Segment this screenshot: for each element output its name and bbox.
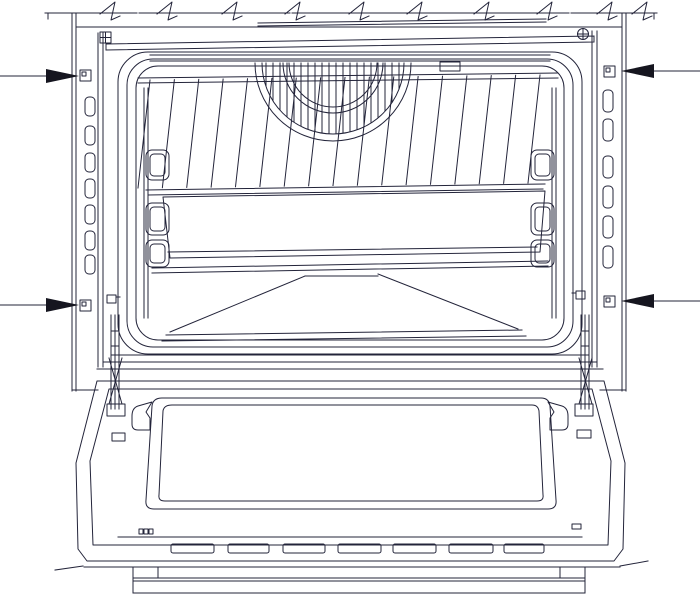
- break-mark: [474, 2, 494, 20]
- rack-wire: [455, 76, 467, 184]
- strip-slot: [603, 90, 613, 112]
- door-latch-left: [132, 402, 152, 430]
- door-outer-outline: [76, 381, 625, 561]
- shelf-bracket-inner: [150, 244, 165, 263]
- rack-wire: [406, 77, 418, 185]
- fixing-screw-holes: [80, 66, 615, 311]
- oven-top-trim: [106, 19, 594, 50]
- rack-wire: [162, 80, 174, 188]
- rack-wire: [431, 76, 443, 184]
- strip-slot: [85, 179, 95, 198]
- break-mark: [597, 2, 617, 20]
- break-mark: [407, 2, 427, 20]
- rack-wire: [187, 79, 199, 187]
- break-mark: [537, 2, 557, 20]
- fixing-arrow-head-bottom-left: [46, 298, 79, 312]
- fixing-hole-notch: [82, 72, 86, 76]
- strip-slot: [85, 205, 95, 224]
- fixing-strip-right: [603, 90, 613, 268]
- plinth-base: [133, 567, 585, 593]
- cavity-floor-perspective: [162, 274, 526, 341]
- cabinet-left-panel: [72, 14, 98, 391]
- wire-rack-front-rail: [146, 184, 545, 195]
- strip-slot: [85, 255, 95, 274]
- hinge-pin-symbol-right: [572, 291, 585, 299]
- strip-slot: [85, 231, 95, 250]
- shelf-bracket-inner: [150, 207, 165, 231]
- shelf-bracket-inner: [150, 154, 165, 176]
- door-mark-square: [149, 529, 153, 534]
- rack-wire: [504, 75, 516, 183]
- strip-slot: [603, 119, 613, 141]
- break-mark: [222, 2, 242, 20]
- shelf-bracket-inner: [535, 154, 550, 176]
- break-mark: [100, 2, 120, 20]
- rack-wire: [236, 79, 248, 187]
- base-outline: [133, 567, 585, 593]
- baking-tray: [163, 191, 545, 258]
- face-bottom-band: [97, 355, 603, 369]
- break-mark: [632, 2, 652, 20]
- oven-installation-diagram: [0, 0, 700, 596]
- strip-slot: [603, 246, 613, 268]
- face-side-edges: [98, 31, 597, 367]
- door-mark-square: [139, 529, 143, 534]
- strip-slot: [85, 97, 95, 116]
- door-inner-outline: [90, 389, 611, 545]
- break-mark: [285, 2, 305, 20]
- fixing-arrow-head-top-left: [46, 69, 79, 83]
- break-mark: [349, 2, 369, 20]
- door-glass-inner: [159, 405, 543, 501]
- fixing-hole-notch: [606, 298, 610, 302]
- strip-slot: [85, 153, 95, 172]
- screw-head-square-icon: [100, 32, 111, 43]
- rack-wire: [211, 79, 223, 187]
- rack-wire: [382, 77, 394, 185]
- diagram-canvas: [0, 0, 700, 596]
- fixing-hole-notch: [606, 68, 610, 72]
- rack-wire: [479, 76, 491, 184]
- hinge-left: [107, 315, 125, 441]
- fixing-hole-notch: [82, 302, 86, 306]
- door-bottom-edge: [55, 561, 648, 570]
- oven-top-panel: [76, 19, 622, 50]
- rack-wire: [284, 78, 296, 186]
- lower-shelf-rail: [152, 261, 548, 273]
- rack-wire: [528, 75, 540, 183]
- strip-slot: [85, 126, 95, 145]
- wire-rack-bars: [138, 75, 540, 188]
- door-mark-rect: [572, 524, 581, 529]
- strip-slot: [603, 156, 613, 178]
- strip-slot: [603, 216, 613, 238]
- door-hinges: [107, 315, 593, 441]
- rear-wall-top-band: [150, 55, 550, 61]
- wire-rack-top-rail: [138, 73, 558, 83]
- door-small-marks: [139, 524, 581, 534]
- fixing-strip-left: [85, 97, 95, 274]
- door-mark-square: [144, 529, 148, 534]
- hinge-right: [575, 315, 593, 438]
- oven-door-open: [55, 381, 648, 570]
- rack-wire: [357, 77, 369, 185]
- worktop-break-line: [45, 2, 657, 20]
- oven-cavity-interior: [138, 55, 558, 341]
- strip-slot: [603, 186, 613, 208]
- door-glass-outer: [146, 398, 556, 509]
- break-mark: [157, 2, 177, 20]
